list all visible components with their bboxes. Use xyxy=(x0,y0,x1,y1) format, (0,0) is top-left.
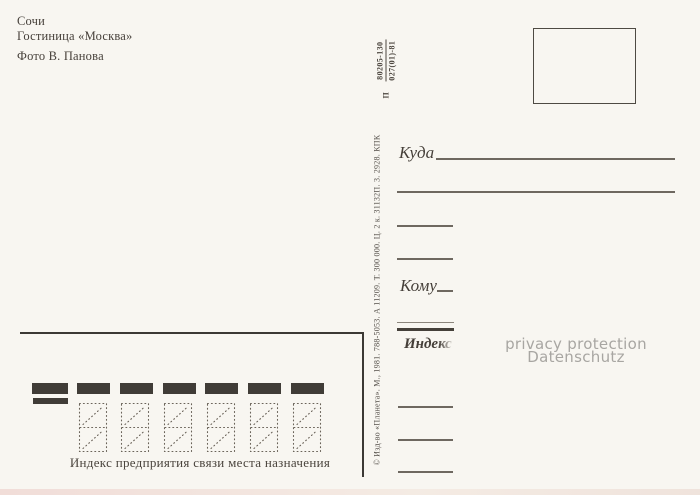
index-label-fade xyxy=(438,334,460,356)
index-rule-thin xyxy=(397,322,454,323)
index-digit-cell xyxy=(163,402,193,458)
kuda-label: Куда xyxy=(399,143,434,163)
stamp-box xyxy=(533,28,636,104)
address-line-9 xyxy=(398,471,453,473)
index-digit-cell xyxy=(120,402,150,458)
photo-credit: Фото В. Панова xyxy=(17,49,133,64)
index-marker-bar xyxy=(205,383,238,394)
komu-line xyxy=(437,290,453,292)
index-marker-bar xyxy=(163,383,196,394)
address-line-2 xyxy=(397,191,675,193)
imprint-code-numerator: 80205-130 xyxy=(376,40,387,82)
imprint-code-denominator: 027(01)-81 xyxy=(387,40,397,82)
index-digit-cell xyxy=(206,402,236,458)
index-marker-bar xyxy=(77,383,110,394)
copyright-line: © Изд-во «Планета». М., 1981. 788-5053. … xyxy=(373,135,382,466)
index-zone-frame-top xyxy=(20,332,364,334)
index-zone-caption: Индекс предприятия связи места назначени… xyxy=(30,455,370,471)
address-line-3 xyxy=(397,225,453,227)
index-marker-underbar xyxy=(33,398,68,404)
address-line-4 xyxy=(397,258,453,260)
index-marker-bar xyxy=(120,383,153,394)
imprint-fraction: 80205-130 027(01)-81 xyxy=(376,40,397,82)
caption-subject: Гостиница «Москва» xyxy=(17,29,133,44)
postcard-back: Сочи Гостиница «Москва» Фото В. Панова П… xyxy=(0,0,700,495)
index-marker-bar xyxy=(248,383,281,394)
index-digit-cell xyxy=(292,402,322,458)
index-marker-bar xyxy=(32,383,68,394)
imprint-prefix: П xyxy=(382,92,391,99)
address-line-8 xyxy=(398,439,453,441)
index-digit-cell xyxy=(249,402,279,458)
caption-block: Сочи Гостиница «Москва» Фото В. Панова xyxy=(17,14,133,64)
privacy-watermark: privacy protection Datenschutz xyxy=(498,338,654,364)
address-line-7 xyxy=(398,406,453,408)
index-digit-cell xyxy=(78,402,108,458)
caption-city: Сочи xyxy=(17,14,133,29)
index-rule-thick xyxy=(397,328,454,331)
index-marker-bar xyxy=(291,383,324,394)
kuda-line xyxy=(436,158,675,160)
komu-label: Кому xyxy=(400,276,437,296)
